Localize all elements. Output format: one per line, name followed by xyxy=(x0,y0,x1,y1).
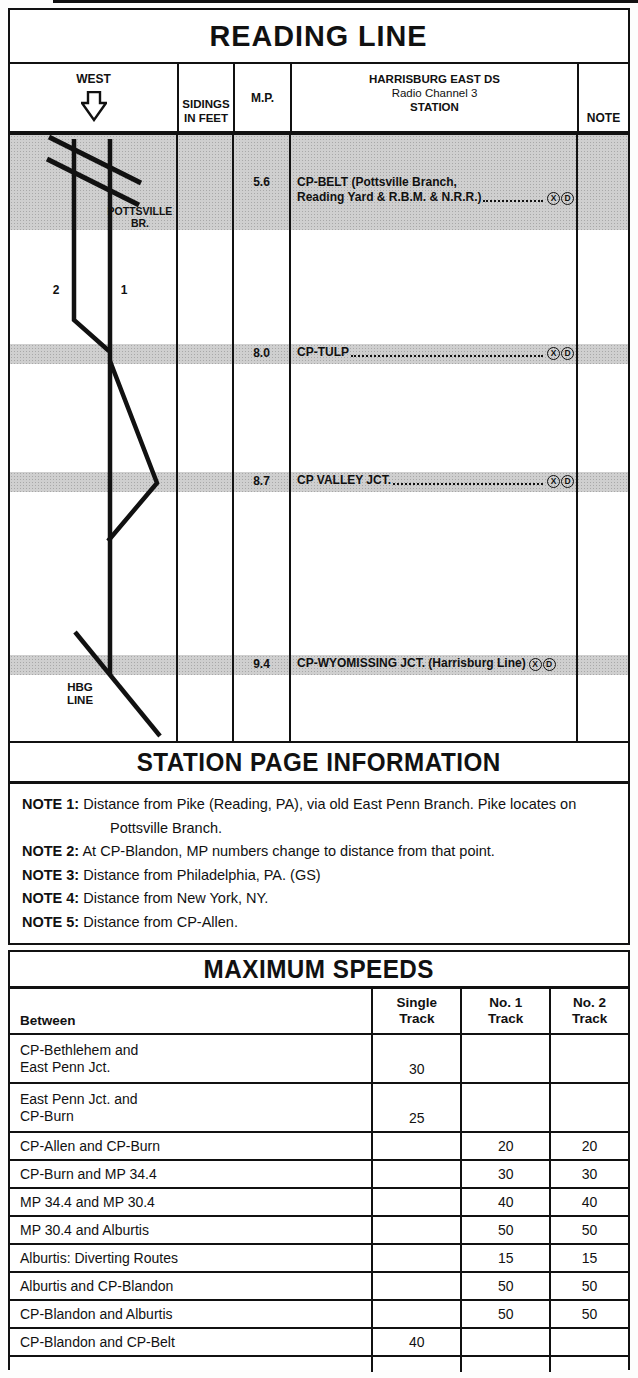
note-number: NOTE 5: xyxy=(22,914,79,930)
station-name-line: Reading Yard & R.B.M. & N.R.R.) X D xyxy=(297,190,574,205)
speed-row: CP-Bethlehem andEast Penn Jct. 30 xyxy=(10,1035,628,1084)
note-number: NOTE 3: xyxy=(22,867,79,883)
no2-track-speed: 50 xyxy=(582,1222,598,1239)
dispatcher-label: HARRISBURG EAST DS xyxy=(369,72,500,86)
note-text: Distance from CP-Allen. xyxy=(83,914,238,930)
speed-row: CP-Burn and MP 34.4 30 30 xyxy=(10,1161,628,1189)
between-segment: Alburtis: Diverting Routes xyxy=(20,1250,178,1267)
between-segment: CP-Blandon and Alburtis xyxy=(20,1306,173,1323)
notes-list: NOTE 1: Distance from Pike (Reading, PA)… xyxy=(10,784,628,934)
single-header-line1: Single xyxy=(397,995,438,1011)
speeds-header-row: Between Single Track No. 1 Track No. 2 T… xyxy=(10,989,628,1035)
single-track-speed: 25 xyxy=(409,1110,425,1127)
milepost-value: 8.0 xyxy=(233,346,290,360)
speed-row: MP 30.4 and Alburtis 50 50 xyxy=(10,1217,628,1245)
mp-label: M.P. xyxy=(251,91,274,105)
station-name-continued: Reading Yard & R.B.M. & N.R.R.) xyxy=(297,190,481,205)
pottsville-label-line2: BR. xyxy=(131,217,149,229)
hbg-line-label: HBG LINE xyxy=(48,681,112,707)
no2-header-line2: Track xyxy=(572,1011,607,1027)
station-name: CP-BELT (Pottsville Branch, xyxy=(297,175,457,190)
scanned-timetable-page: { "title": "READING LINE", "header": { "… xyxy=(0,0,638,1378)
no1-header-line2: Track xyxy=(488,1011,523,1027)
between-segment: CP-Burn and MP 34.4 xyxy=(20,1166,157,1183)
no2-track-speed: 15 xyxy=(582,1250,598,1267)
note-number: NOTE 4: xyxy=(22,890,79,906)
sidings-label-line1: SIDINGS xyxy=(182,97,229,111)
hbg-label-line1: HBG xyxy=(67,681,93,693)
note-item-5: NOTE 5: Distance from CP-Allen. xyxy=(22,911,616,935)
no1-track-speed: 20 xyxy=(498,1138,514,1155)
between-segment: MP 30.4 and Alburtis xyxy=(20,1222,149,1239)
station-name-line: CP-WYOMISSING JCT. (Harrisburg Line) X D xyxy=(297,656,574,671)
maximum-speeds-title: MAXIMUM SPEEDS xyxy=(204,955,434,984)
no1-track-speed: 30 xyxy=(498,1166,514,1183)
west-down-arrow-icon xyxy=(81,91,107,122)
station-page-information-title: STATION PAGE INFORMATION xyxy=(137,748,501,777)
between-segment-line2: CP-Burn xyxy=(20,1108,74,1125)
station-name: CP VALLEY JCT. xyxy=(297,473,391,488)
speed-row: CP-Allen and CP-Burn 20 20 xyxy=(10,1133,628,1161)
no2-track-speed: 50 xyxy=(582,1278,598,1295)
column-rule-note xyxy=(576,135,578,750)
milepost-value: 9.4 xyxy=(233,657,290,671)
note-item-3: NOTE 3: Distance from Philadelphia, PA. … xyxy=(22,864,616,888)
no1-track-speed: 40 xyxy=(498,1194,514,1211)
between-segment: Alburtis and CP-Blandon xyxy=(20,1278,173,1295)
radio-channel-label: Radio Channel 3 xyxy=(392,86,478,100)
track-2-number: 2 xyxy=(48,284,64,296)
no1-track-speed: 15 xyxy=(498,1250,514,1267)
no1-track-speed: 50 xyxy=(498,1278,514,1295)
between-segment: East Penn Jct. and xyxy=(20,1091,138,1108)
no1-track-speed: 50 xyxy=(498,1306,514,1323)
no1-track-speed: 50 xyxy=(498,1222,514,1239)
between-segment: CP-Allen and CP-Burn xyxy=(20,1138,160,1155)
page-title: READING LINE xyxy=(210,19,428,53)
no2-track-speed: 40 xyxy=(582,1194,598,1211)
no2-track-speed: 30 xyxy=(582,1166,598,1183)
station-label: STATION xyxy=(410,100,459,114)
station-page-information-section: STATION PAGE INFORMATION NOTE 1: Distanc… xyxy=(8,741,630,945)
no2-track-speed: 20 xyxy=(582,1138,598,1155)
speed-row: Alburtis and CP-Blandon 50 50 xyxy=(10,1273,628,1301)
column-header-sidings: SIDINGS IN FEET xyxy=(177,64,233,131)
speed-row: Alburtis: Diverting Routes 15 15 xyxy=(10,1245,628,1273)
circled-x-symbol: X xyxy=(547,192,560,205)
milepost-value: 5.6 xyxy=(233,175,290,189)
no2-track-speed: 50 xyxy=(582,1306,598,1323)
speed-row: MP 34.4 and MP 30.4 40 40 xyxy=(10,1189,628,1217)
track-diagram: POTTSVILLE BR. 2 1 HBG LINE 5.6 CP-BELT … xyxy=(10,135,628,750)
note-label: NOTE xyxy=(587,111,620,125)
station-name-line: CP VALLEY JCT. X D xyxy=(297,473,574,488)
between-column-header: Between xyxy=(10,989,371,1033)
station-name: CP-WYOMISSING JCT. (Harrisburg Line) xyxy=(297,656,526,671)
reading-line-table: READING LINE WEST SIDINGS IN FEET M.P. H… xyxy=(8,8,630,748)
speed-row: East Penn Jct. andCP-Burn 25 xyxy=(10,1084,628,1133)
station-entry-cp-belt: CP-BELT (Pottsville Branch, Reading Yard… xyxy=(297,175,574,205)
single-track-speed: 40 xyxy=(409,1334,425,1351)
scan-edge-artifact xyxy=(53,0,638,3)
column-header-row: WEST SIDINGS IN FEET M.P. HARRISBURG EAS… xyxy=(10,64,628,135)
station-entry-cp-wyomissing-jct: CP-WYOMISSING JCT. (Harrisburg Line) X D xyxy=(297,656,574,671)
note-text: Distance from Philadelphia, PA. (GS) xyxy=(83,867,320,883)
note-text: Distance from Pike (Reading, PA), via ol… xyxy=(83,796,576,836)
station-entry-cp-tulp: CP-TULP X D xyxy=(297,345,574,360)
page-title-row: READING LINE xyxy=(10,10,628,64)
speed-row: CP-Blandon and Alburtis 50 50 xyxy=(10,1301,628,1329)
station-name: CP-TULP xyxy=(297,345,349,360)
milepost-value: 8.7 xyxy=(233,474,290,488)
single-header-line2: Track xyxy=(399,1011,434,1027)
maximum-speeds-section: MAXIMUM SPEEDS Between Single Track No. … xyxy=(8,950,630,1370)
no2-track-column-header: No. 2 Track xyxy=(549,989,628,1033)
dot-leader xyxy=(483,200,543,202)
column-header-note: NOTE xyxy=(577,64,628,131)
note-number: NOTE 2: xyxy=(22,843,79,859)
single-track-column-header: Single Track xyxy=(371,989,460,1033)
dot-leader xyxy=(351,355,543,357)
sidings-label-line2: IN FEET xyxy=(184,111,228,125)
between-segment: CP-Blandon and CP-Belt xyxy=(20,1334,175,1351)
circled-d-symbol: D xyxy=(561,192,574,205)
pottsville-branch-label: POTTSVILLE BR. xyxy=(102,205,178,229)
note-text: Distance from New York, NY. xyxy=(83,890,268,906)
circled-d-symbol: D xyxy=(561,475,574,488)
dot-leader xyxy=(393,483,543,485)
hbg-label-line2: LINE xyxy=(67,694,93,706)
circled-x-symbol: X xyxy=(529,658,542,671)
note-item-1: NOTE 1: Distance from Pike (Reading, PA)… xyxy=(22,793,616,840)
between-segment-line2: East Penn Jct. xyxy=(20,1059,110,1076)
section-title-row: MAXIMUM SPEEDS xyxy=(10,952,628,989)
pottsville-label-line1: POTTSVILLE xyxy=(108,205,173,217)
single-track-speed: 30 xyxy=(409,1061,425,1078)
between-segment: MP 34.4 and MP 30.4 xyxy=(20,1194,155,1211)
west-label: WEST xyxy=(76,72,111,86)
circled-x-symbol: X xyxy=(547,347,560,360)
column-header-mp: M.P. xyxy=(233,64,290,131)
note-item-4: NOTE 4: Distance from New York, NY. xyxy=(22,887,616,911)
station-name-line: CP-BELT (Pottsville Branch, xyxy=(297,175,574,190)
speed-row: CP-Blandon and CP-Belt 40 xyxy=(10,1329,628,1357)
between-header-label: Between xyxy=(20,1013,76,1029)
section-title-row: STATION PAGE INFORMATION xyxy=(10,743,628,784)
circled-x-symbol: X xyxy=(547,475,560,488)
note-text: At CP-Blandon, MP numbers change to dist… xyxy=(82,843,494,859)
partial-cutoff-row xyxy=(10,1357,628,1372)
circled-d-symbol: D xyxy=(561,347,574,360)
station-name-line: CP-TULP X D xyxy=(297,345,574,360)
no1-header-line1: No. 1 xyxy=(489,995,522,1011)
no1-track-column-header: No. 1 Track xyxy=(460,989,549,1033)
between-segment: CP-Bethlehem and xyxy=(20,1042,138,1059)
column-header-station: HARRISBURG EAST DS Radio Channel 3 STATI… xyxy=(290,64,577,131)
circled-d-symbol: D xyxy=(543,658,556,671)
station-entry-cp-valley-jct: CP VALLEY JCT. X D xyxy=(297,473,574,488)
note-item-2: NOTE 2: At CP-Blandon, MP numbers change… xyxy=(22,840,616,864)
column-header-west: WEST xyxy=(10,64,177,131)
no2-header-line1: No. 2 xyxy=(573,995,606,1011)
note-number: NOTE 1: xyxy=(22,796,79,812)
track-1-number: 1 xyxy=(116,284,132,296)
